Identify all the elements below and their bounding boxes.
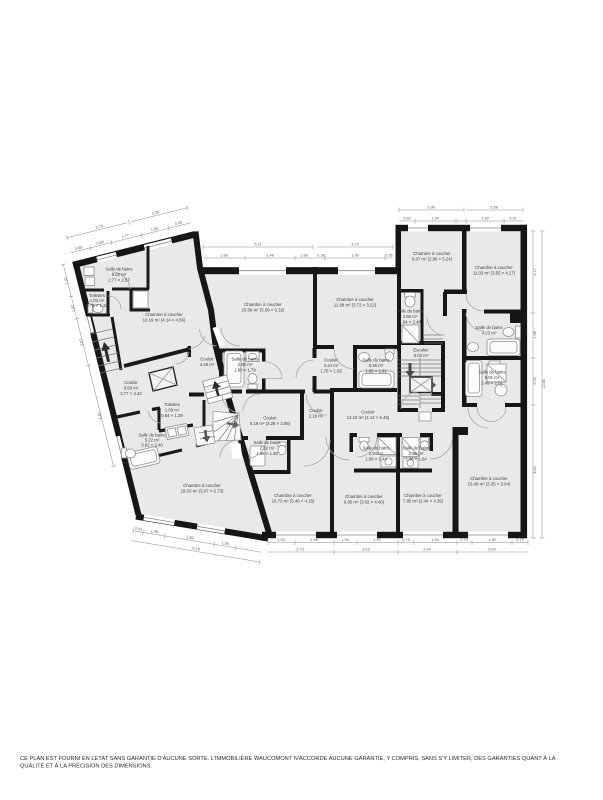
svg-text:3.64: 3.64 xyxy=(533,466,537,473)
svg-text:Chambre à coucher: Chambre à coucher xyxy=(404,493,442,498)
svg-text:11.03 m² (3.55 × 4.17): 11.03 m² (3.55 × 4.17) xyxy=(473,271,516,276)
svg-text:0.36: 0.36 xyxy=(385,254,392,258)
svg-text:Salle de bains: Salle de bains xyxy=(397,309,424,314)
svg-text:Chambre à coucher: Chambre à coucher xyxy=(470,476,508,481)
svg-text:3.77 × 4.42: 3.77 × 4.42 xyxy=(120,391,142,396)
svg-text:Chambre à coucher: Chambre à coucher xyxy=(345,494,383,499)
svg-text:Salle de bains: Salle de bains xyxy=(403,446,430,451)
svg-text:1.90: 1.90 xyxy=(431,538,438,542)
svg-text:Chambre à coucher: Chambre à coucher xyxy=(145,312,183,317)
svg-text:1.90: 1.90 xyxy=(341,538,348,542)
svg-text:9.58 m²: 9.58 m² xyxy=(124,386,139,391)
svg-text:19.03 m² (5.07 × 6.73): 19.03 m² (5.07 × 6.73) xyxy=(181,489,224,494)
svg-text:3.73: 3.73 xyxy=(296,548,303,552)
svg-text:1.04 × 2.48: 1.04 × 2.48 xyxy=(399,320,421,325)
svg-text:CE PLAN EST FOURNI EN LETAT SA: CE PLAN EST FOURNI EN LETAT SANS GARANTI… xyxy=(20,755,556,762)
svg-text:4.23 m²: 4.23 m² xyxy=(482,331,497,336)
svg-text:Chambre à coucher: Chambre à coucher xyxy=(475,265,513,270)
svg-text:2.96: 2.96 xyxy=(427,206,434,210)
svg-text:Couloir: Couloir xyxy=(324,358,338,363)
svg-text:3.72: 3.72 xyxy=(351,243,358,247)
svg-text:7.95 m² (2.44 × 4.39): 7.95 m² (2.44 × 4.39) xyxy=(403,499,444,504)
svg-text:Chambre à coucher: Chambre à coucher xyxy=(274,493,312,498)
svg-text:5.11: 5.11 xyxy=(254,243,261,247)
svg-text:Toilettes: Toilettes xyxy=(164,402,180,407)
svg-text:1.98 × 1.38: 1.98 × 1.38 xyxy=(256,451,278,456)
svg-text:2.90 m²: 2.90 m² xyxy=(238,362,253,367)
svg-text:3.44 m²: 3.44 m² xyxy=(324,363,339,368)
svg-text:5.01 m²: 5.01 m² xyxy=(485,375,500,380)
svg-text:5.00: 5.00 xyxy=(488,548,495,552)
svg-text:11.98 m² (3.72 × 3.22): 11.98 m² (3.72 × 3.22) xyxy=(334,303,377,308)
svg-text:0.75: 0.75 xyxy=(402,538,409,542)
svg-text:2.36 m²: 2.36 m² xyxy=(409,451,424,456)
svg-text:0.73: 0.73 xyxy=(460,538,467,542)
svg-text:2.02: 2.02 xyxy=(533,377,537,384)
svg-text:0.84 × 1.29: 0.84 × 1.29 xyxy=(161,413,183,418)
svg-text:0.73: 0.73 xyxy=(516,538,523,542)
svg-text:Escalier: Escalier xyxy=(413,348,429,353)
svg-text:Couloir: Couloir xyxy=(200,357,214,362)
svg-text:1.90: 1.90 xyxy=(351,254,358,258)
svg-text:0.80: 0.80 xyxy=(403,217,410,221)
svg-text:1.90: 1.90 xyxy=(373,538,380,542)
svg-text:QUALITÉ ET À LA PRÉCISION DES: QUALITÉ ET À LA PRÉCISION DES DIMENSIONS… xyxy=(20,763,152,770)
svg-text:9.87 m² (2.86 × 5.24): 9.87 m² (2.86 × 5.24) xyxy=(412,257,453,262)
svg-text:1.94: 1.94 xyxy=(431,217,438,221)
svg-text:2.52 m²: 2.52 m² xyxy=(260,446,275,451)
svg-text:Chambre à coucher: Chambre à coucher xyxy=(183,483,221,488)
svg-text:1.98: 1.98 xyxy=(533,331,537,338)
svg-text:2.44: 2.44 xyxy=(423,548,430,552)
svg-text:10.73 m² (3.48 × 4.15): 10.73 m² (3.48 × 4.15) xyxy=(272,499,315,504)
svg-text:13.16 m² (4.14 × 5.45): 13.16 m² (4.14 × 5.45) xyxy=(347,415,390,420)
svg-text:20.06 m² (5.09 × 5.32): 20.06 m² (5.09 × 5.32) xyxy=(242,308,285,313)
svg-text:Couloir: Couloir xyxy=(361,410,375,415)
svg-text:12.66: 12.66 xyxy=(542,379,546,389)
svg-text:2.48: 2.48 xyxy=(266,254,273,258)
svg-text:0.91: 0.91 xyxy=(509,217,516,221)
svg-text:1.23: 1.23 xyxy=(277,538,284,542)
svg-text:2.18 m²: 2.18 m² xyxy=(309,414,324,419)
svg-text:Salle de bains: Salle de bains xyxy=(479,370,506,375)
svg-text:0.78 × 1.32: 0.78 × 1.32 xyxy=(86,303,108,308)
svg-text:3.58: 3.58 xyxy=(490,206,497,210)
svg-text:16.19 m² (4.14 × 4.56): 16.19 m² (4.14 × 4.56) xyxy=(143,318,186,323)
svg-text:Salle de bains: Salle de bains xyxy=(363,358,390,363)
svg-text:Salle de bains: Salle de bains xyxy=(363,446,390,451)
svg-text:4.48 m²: 4.48 m² xyxy=(200,362,215,367)
svg-text:3.02 × 2.40: 3.02 × 2.40 xyxy=(141,443,163,448)
svg-text:Chambre à coucher: Chambre à coucher xyxy=(244,302,282,307)
svg-text:1.99 × 1.44: 1.99 × 1.44 xyxy=(365,457,387,462)
svg-text:Couloir: Couloir xyxy=(263,416,277,421)
svg-text:5.46 m²: 5.46 m² xyxy=(369,363,384,368)
svg-text:2.77 × 2.57: 2.77 × 2.57 xyxy=(108,278,130,283)
svg-text:6.19 m² (3.28 × 2.05): 6.19 m² (3.28 × 2.05) xyxy=(250,421,291,426)
svg-text:Salle de bains: Salle de bains xyxy=(254,440,281,445)
svg-text:5.03 m²: 5.03 m² xyxy=(414,353,429,358)
svg-text:Chambre à coucher: Chambre à coucher xyxy=(413,251,451,256)
svg-text:4.17: 4.17 xyxy=(533,268,537,275)
svg-text:1.92 × 1.91: 1.92 × 1.91 xyxy=(365,369,387,374)
svg-text:1.90 × 1.79: 1.90 × 1.79 xyxy=(234,368,256,373)
svg-text:9.95 m² (3.02 × 4.40): 9.95 m² (3.02 × 4.40) xyxy=(344,500,385,505)
svg-text:Couloir: Couloir xyxy=(309,408,323,413)
svg-text:1.98: 1.98 xyxy=(310,538,317,542)
svg-text:Chambre à coucher: Chambre à coucher xyxy=(336,297,374,302)
svg-text:1.90: 1.90 xyxy=(488,538,495,542)
svg-text:1.78 × 1.93: 1.78 × 1.93 xyxy=(320,369,342,374)
svg-text:1.98: 1.98 xyxy=(300,254,307,258)
svg-text:0.36: 0.36 xyxy=(317,254,324,258)
svg-text:Salle de bains: Salle de bains xyxy=(232,357,259,362)
svg-text:1.98: 1.98 xyxy=(220,254,227,258)
svg-text:5.02 m²: 5.02 m² xyxy=(112,272,127,277)
svg-text:Salle de bains: Salle de bains xyxy=(476,325,503,330)
svg-text:3.03: 3.03 xyxy=(362,548,369,552)
svg-text:1.09 m²: 1.09 m² xyxy=(165,408,180,413)
svg-text:2.49 × 2.02: 2.49 × 2.02 xyxy=(481,381,503,386)
svg-text:1.90: 1.90 xyxy=(481,217,488,221)
svg-text:Couloir: Couloir xyxy=(124,380,138,385)
svg-text:Salle de bains: Salle de bains xyxy=(106,267,133,272)
svg-text:1.46 × 1.64: 1.46 × 1.64 xyxy=(405,457,427,462)
svg-text:16.48 m² (3.35 × 3.64): 16.48 m² (3.35 × 3.64) xyxy=(468,482,511,487)
svg-text:2.88 m²: 2.88 m² xyxy=(403,314,418,319)
svg-text:2.94 m²: 2.94 m² xyxy=(369,451,384,456)
